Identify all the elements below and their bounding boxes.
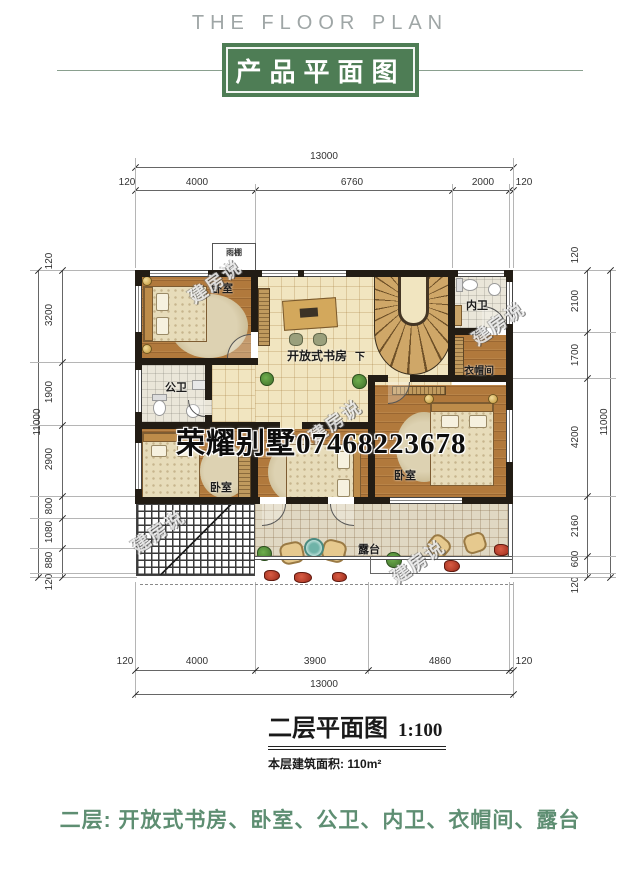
dim-ext [452, 184, 453, 268]
door-opening [251, 332, 258, 358]
dim-bottom-seg: 120 [510, 657, 538, 667]
wall [410, 375, 513, 382]
terrace-step-line [512, 556, 513, 574]
dim-right-seg: 1700 [571, 341, 581, 369]
dim-left-seg: 2900 [45, 445, 55, 473]
plan-scale: 1:100 [398, 720, 442, 741]
dim-ext [135, 158, 136, 268]
dim-right-seg: 4200 [571, 423, 581, 451]
dim-line [135, 167, 513, 168]
dim-ext [510, 577, 616, 578]
outer-wall [135, 270, 513, 504]
dim-ext [30, 270, 137, 271]
watermark-phone: 荣耀别墅07468223678 [176, 420, 467, 462]
window [304, 270, 346, 277]
dim-bottom-seg: 3900 [295, 657, 335, 667]
room-label-bath-public: 公卫 [165, 382, 187, 394]
dim-right-seg: 120 [571, 241, 581, 269]
wall [135, 358, 258, 365]
dim-right-seg: 2160 [571, 512, 581, 540]
plan-title: 二层平面图 [268, 716, 388, 742]
door-opening [260, 497, 286, 504]
dim-ext [510, 378, 616, 379]
dim-right-seg: 120 [571, 571, 581, 599]
flower-box [294, 572, 312, 583]
dim-ext [510, 332, 616, 333]
terrace-railing [255, 556, 513, 560]
floor-plan-page: THE FLOOR PLAN 产品平面图 13000 120 4000 6760… [0, 0, 640, 881]
dim-top-seg: 4000 [177, 178, 217, 188]
dim-ext [30, 362, 137, 363]
dim-bottom-seg: 4860 [420, 657, 460, 667]
stairs-down-label: 下 [355, 352, 365, 363]
room-label-cloakroom: 衣帽间 [464, 366, 494, 377]
window [135, 443, 142, 489]
dim-ext [510, 556, 616, 557]
dim-top-seg: 6760 [332, 178, 372, 188]
setback-dashed-line [140, 584, 513, 585]
window [262, 270, 298, 277]
dim-right-seg: 2100 [571, 287, 581, 315]
dim-ext [368, 582, 369, 674]
dim-left-seg: 3200 [45, 301, 55, 329]
room-label-bedroom: 卧室 [394, 470, 416, 482]
header-title: 产品平面图 [226, 47, 415, 93]
room-label-bath-inner: 内卫 [466, 300, 488, 312]
terrace-chair [278, 540, 306, 567]
dim-ext [510, 496, 616, 497]
dim-ext [30, 573, 137, 574]
window [135, 286, 142, 332]
dim-left-seg: 1900 [45, 378, 55, 406]
header-subtitle: THE FLOOR PLAN [0, 12, 640, 35]
window [390, 497, 462, 504]
dim-top-total: 13000 [300, 152, 348, 162]
dim-ext [135, 582, 136, 698]
dim-top-seg: 120 [510, 178, 538, 188]
dim-ext [30, 577, 137, 578]
plan-caption-title: 二层平面图1:100 [268, 708, 446, 750]
dim-top-seg: 2000 [463, 178, 503, 188]
dim-line [610, 270, 611, 577]
window [135, 370, 142, 412]
flower-box [264, 570, 280, 581]
terrace-railing [508, 504, 513, 556]
header-title-box: 产品平面图 [222, 43, 419, 97]
door-opening [328, 497, 354, 504]
dim-right-seg: 600 [571, 545, 581, 573]
dim-ext [513, 582, 514, 698]
dim-ext [30, 518, 137, 519]
plan-caption: 二层平面图1:100 本层建筑面积: 110m² [268, 708, 446, 772]
terrace-table [304, 538, 324, 558]
flower-box [444, 560, 460, 572]
dim-bottom-seg: 120 [111, 657, 139, 667]
dim-ext [513, 158, 514, 268]
dim-ext [255, 582, 256, 674]
window [458, 270, 504, 277]
dim-line [135, 190, 513, 191]
terrace-step-line [370, 556, 371, 574]
dim-ext [30, 496, 137, 497]
dim-ext [30, 425, 137, 426]
dim-right-total: 11000 [600, 400, 610, 444]
dim-left-total: 11000 [33, 400, 43, 444]
flower-box [332, 572, 347, 582]
wall [205, 362, 212, 400]
wall [448, 270, 455, 335]
dim-bottom-seg: 4000 [177, 657, 217, 667]
dim-bottom-total: 13000 [300, 680, 348, 690]
plan-area-label: 本层建筑面积: 110m² [268, 755, 446, 772]
dim-ext [30, 548, 137, 549]
wall [372, 375, 388, 382]
room-label-terrace: 露台 [358, 544, 380, 556]
dim-line [135, 694, 513, 695]
dim-line [587, 270, 588, 577]
dim-line [135, 670, 513, 671]
dim-ext [510, 270, 616, 271]
room-label-study: 开放式书房 [287, 350, 347, 363]
dim-ext [509, 184, 510, 268]
dim-ext [510, 573, 616, 574]
dim-left-seg: 1080 [45, 518, 55, 546]
footer-room-summary: 二层: 开放式书房、卧室、公卫、内卫、衣帽间、露台 [0, 804, 640, 834]
room-label-bedroom: 卧室 [210, 482, 232, 494]
window [506, 410, 513, 462]
